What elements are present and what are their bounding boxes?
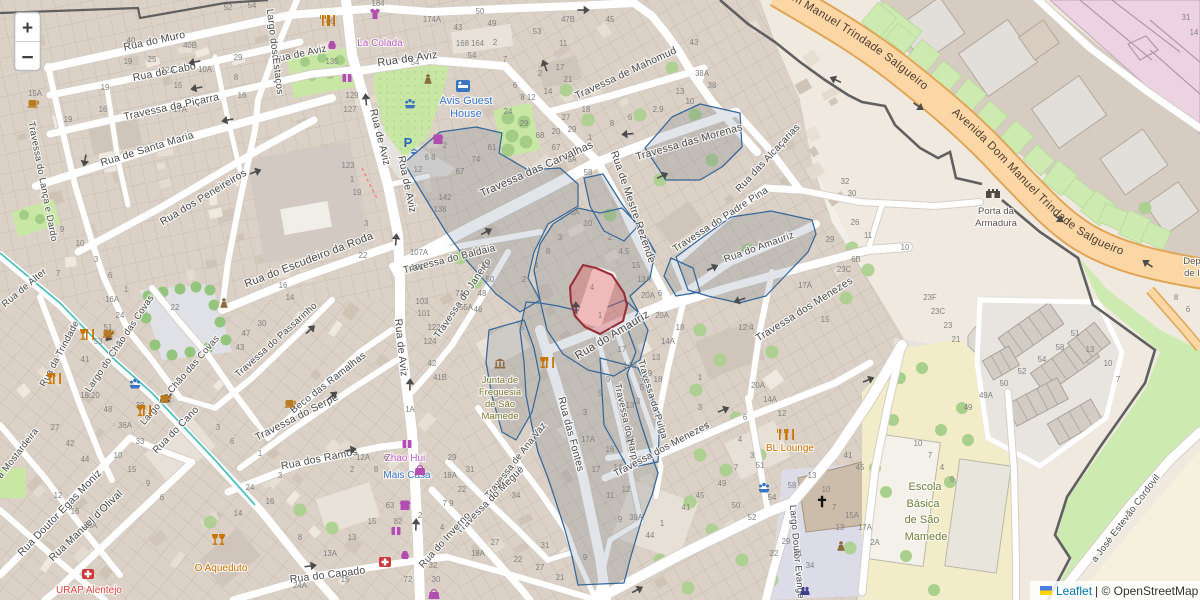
svg-text:18: 18 <box>582 105 591 114</box>
svg-text:6: 6 <box>628 113 632 122</box>
svg-text:42: 42 <box>428 359 437 368</box>
svg-text:24: 24 <box>504 107 513 116</box>
svg-text:127: 127 <box>343 105 356 114</box>
svg-text:10: 10 <box>584 219 593 228</box>
svg-text:61: 61 <box>488 143 497 152</box>
svg-text:21: 21 <box>564 75 573 84</box>
svg-text:107A: 107A <box>410 248 429 257</box>
svg-text:19: 19 <box>64 115 73 124</box>
svg-text:45: 45 <box>606 15 615 24</box>
svg-text:21: 21 <box>952 335 961 344</box>
svg-text:4: 4 <box>440 523 445 532</box>
svg-text:68: 68 <box>536 131 545 140</box>
svg-text:23C: 23C <box>931 307 946 316</box>
svg-text:Porta da: Porta da <box>978 206 1015 217</box>
svg-text:8: 8 <box>546 247 550 256</box>
svg-text:House: House <box>450 108 482 120</box>
svg-text:19: 19 <box>353 188 362 197</box>
svg-text:9: 9 <box>583 553 587 562</box>
svg-text:36A: 36A <box>83 521 98 530</box>
svg-text:17A: 17A <box>173 105 188 114</box>
svg-text:3: 3 <box>216 423 220 432</box>
svg-text:38: 38 <box>708 81 717 90</box>
svg-text:17: 17 <box>618 345 627 354</box>
svg-text:2: 2 <box>538 69 542 78</box>
svg-text:9: 9 <box>146 479 150 488</box>
svg-text:+: + <box>22 18 33 39</box>
svg-text:15A: 15A <box>28 89 43 98</box>
svg-text:27: 27 <box>491 538 500 547</box>
svg-text:7: 7 <box>503 55 507 64</box>
svg-text:58: 58 <box>584 168 593 177</box>
svg-text:Armadura: Armadura <box>975 218 1017 229</box>
svg-text:9: 9 <box>60 225 64 234</box>
svg-text:7 9: 7 9 <box>443 499 454 508</box>
svg-text:4: 4 <box>704 421 709 430</box>
svg-text:50: 50 <box>486 275 495 284</box>
svg-text:49A: 49A <box>979 391 994 400</box>
svg-text:7: 7 <box>928 451 932 460</box>
svg-text:4: 4 <box>940 463 945 472</box>
svg-text:4: 4 <box>738 435 743 444</box>
svg-text:23F: 23F <box>923 293 937 302</box>
svg-text:16: 16 <box>71 507 80 516</box>
svg-text:Avis Guest: Avis Guest <box>440 95 493 107</box>
svg-text:14A: 14A <box>661 337 676 346</box>
svg-text:10: 10 <box>114 451 123 460</box>
svg-text:17: 17 <box>556 63 565 72</box>
svg-text:53: 53 <box>533 27 542 36</box>
svg-text:8: 8 <box>298 533 302 542</box>
svg-text:22: 22 <box>514 555 523 564</box>
svg-text:51: 51 <box>756 461 765 470</box>
svg-text:48: 48 <box>104 405 113 414</box>
svg-text:54: 54 <box>411 58 420 67</box>
svg-text:18A: 18A <box>443 471 458 480</box>
svg-text:14: 14 <box>1190 28 1199 37</box>
svg-text:6: 6 <box>384 453 388 462</box>
svg-text:4: 4 <box>590 283 595 292</box>
svg-text:14: 14 <box>286 293 295 302</box>
svg-text:103: 103 <box>415 297 428 306</box>
svg-text:22: 22 <box>359 251 368 260</box>
svg-text:Freguesia: Freguesia <box>479 387 522 398</box>
svg-text:3: 3 <box>558 233 562 242</box>
svg-text:58: 58 <box>1056 343 1065 352</box>
svg-text:31: 31 <box>466 465 475 474</box>
svg-text:67: 67 <box>552 143 561 152</box>
svg-text:14: 14 <box>234 509 243 518</box>
svg-text:9: 9 <box>648 369 652 378</box>
svg-text:18A: 18A <box>471 549 486 558</box>
svg-text:3: 3 <box>636 397 640 406</box>
svg-text:P: P <box>404 135 413 150</box>
svg-text:27: 27 <box>536 563 545 572</box>
svg-text:20A: 20A <box>655 311 670 320</box>
svg-text:| © OpenStreetMap: | © OpenStreetMap <box>1095 584 1199 598</box>
svg-text:51: 51 <box>1071 329 1080 338</box>
svg-text:de I: de I <box>1184 268 1200 279</box>
svg-text:10: 10 <box>1104 359 1113 368</box>
svg-text:42: 42 <box>66 439 75 448</box>
svg-text:82: 82 <box>394 517 403 526</box>
svg-text:20A: 20A <box>641 291 656 300</box>
svg-text:16: 16 <box>266 497 275 506</box>
svg-text:13: 13 <box>808 471 817 480</box>
svg-text:1: 1 <box>660 519 664 528</box>
svg-text:29: 29 <box>234 53 243 62</box>
svg-text:13A: 13A <box>637 275 652 284</box>
svg-text:3: 3 <box>364 219 368 228</box>
svg-text:5: 5 <box>520 323 525 332</box>
svg-text:17A: 17A <box>858 523 873 532</box>
svg-text:3: 3 <box>94 255 98 264</box>
svg-text:23C: 23C <box>837 265 852 274</box>
svg-text:22: 22 <box>171 303 180 312</box>
svg-text:4,5: 4,5 <box>619 247 631 256</box>
svg-text:30: 30 <box>258 319 267 328</box>
svg-text:6: 6 <box>743 413 747 422</box>
svg-text:33: 33 <box>136 437 145 446</box>
svg-text:54: 54 <box>768 493 777 502</box>
svg-text:22: 22 <box>458 485 467 494</box>
svg-text:1: 1 <box>598 311 602 320</box>
svg-text:54: 54 <box>468 51 477 60</box>
svg-text:43: 43 <box>236 343 245 352</box>
svg-text:19: 19 <box>124 57 133 66</box>
svg-text:1A: 1A <box>405 405 415 414</box>
svg-text:12: 12 <box>414 165 423 174</box>
svg-text:29: 29 <box>782 537 791 546</box>
svg-text:44: 44 <box>81 455 90 464</box>
svg-text:URAP Alentejo: URAP Alentejo <box>56 585 122 596</box>
svg-text:12A: 12A <box>161 66 176 75</box>
svg-text:49: 49 <box>718 479 727 488</box>
svg-text:18: 18 <box>676 323 685 332</box>
svg-text:17A: 17A <box>581 435 596 444</box>
svg-text:50: 50 <box>1000 379 1009 388</box>
svg-text:30: 30 <box>848 189 857 198</box>
svg-text:10: 10 <box>76 239 85 248</box>
svg-text:50: 50 <box>476 7 485 16</box>
svg-text:53: 53 <box>94 337 103 346</box>
svg-text:31: 31 <box>541 541 550 550</box>
svg-text:14: 14 <box>614 463 623 472</box>
svg-text:67: 67 <box>456 167 465 176</box>
svg-text:43: 43 <box>690 38 699 47</box>
svg-text:4: 4 <box>534 261 539 270</box>
svg-text:31: 31 <box>794 549 803 558</box>
svg-text:41B: 41B <box>433 373 447 382</box>
svg-text:138: 138 <box>433 205 446 214</box>
svg-text:16: 16 <box>238 91 247 100</box>
svg-text:6: 6 <box>950 475 954 484</box>
svg-text:Leaflet: Leaflet <box>1056 584 1093 598</box>
svg-text:16A: 16A <box>105 295 120 304</box>
svg-text:30: 30 <box>432 575 441 584</box>
svg-text:24: 24 <box>116 311 125 320</box>
svg-text:15: 15 <box>174 81 183 90</box>
svg-text:46: 46 <box>474 305 483 314</box>
svg-text:29: 29 <box>520 119 529 128</box>
svg-text:14A: 14A <box>623 361 638 370</box>
svg-text:6 8: 6 8 <box>425 153 436 162</box>
svg-text:1: 1 <box>698 373 702 382</box>
svg-text:58: 58 <box>788 481 797 490</box>
svg-text:2: 2 <box>608 233 612 242</box>
svg-text:40: 40 <box>127 36 136 45</box>
svg-text:BL Lounge: BL Lounge <box>766 443 814 454</box>
svg-text:129: 129 <box>345 91 358 100</box>
svg-text:11: 11 <box>559 39 567 48</box>
svg-text:22: 22 <box>770 549 779 558</box>
svg-text:12: 12 <box>54 491 63 500</box>
svg-text:5A: 5A <box>570 208 580 217</box>
svg-text:2: 2 <box>522 275 526 284</box>
svg-text:13: 13 <box>348 533 357 542</box>
svg-text:16: 16 <box>606 445 615 454</box>
svg-text:39A: 39A <box>629 513 644 522</box>
svg-text:18:20: 18:20 <box>80 391 100 400</box>
svg-text:8: 8 <box>1174 293 1178 302</box>
svg-text:18: 18 <box>654 375 663 384</box>
svg-text:19: 19 <box>101 83 110 92</box>
svg-text:3: 3 <box>750 451 754 460</box>
svg-text:de São: de São <box>905 514 940 526</box>
svg-text:8: 8 <box>374 465 378 474</box>
svg-text:1: 1 <box>124 285 128 294</box>
svg-text:52: 52 <box>1018 367 1027 376</box>
svg-text:7: 7 <box>734 463 738 472</box>
svg-text:12:4: 12:4 <box>738 323 754 332</box>
svg-text:41: 41 <box>682 503 691 512</box>
svg-text:2: 2 <box>350 465 354 474</box>
svg-text:1: 1 <box>258 449 262 458</box>
svg-text:45: 45 <box>696 491 705 500</box>
svg-text:17A: 17A <box>798 281 813 290</box>
svg-text:7A: 7A <box>455 289 465 298</box>
svg-text:25: 25 <box>148 55 157 64</box>
svg-text:2,9: 2,9 <box>653 105 664 114</box>
svg-text:41: 41 <box>844 451 853 460</box>
svg-text:9: 9 <box>606 375 610 384</box>
svg-text:de São: de São <box>485 399 515 410</box>
svg-text:43: 43 <box>454 23 463 32</box>
svg-text:O Aqueduto: O Aqueduto <box>195 563 248 574</box>
svg-text:La Colada: La Colada <box>357 38 403 49</box>
svg-text:1: 1 <box>588 133 592 142</box>
svg-text:6: 6 <box>658 289 662 298</box>
svg-text:10: 10 <box>914 439 923 448</box>
svg-text:14A: 14A <box>763 395 778 404</box>
svg-text:16: 16 <box>279 281 288 290</box>
svg-text:15: 15 <box>341 575 350 584</box>
svg-text:Básica: Básica <box>906 498 940 510</box>
svg-text:7: 7 <box>832 503 836 512</box>
svg-text:8 12: 8 12 <box>520 93 535 102</box>
svg-text:24A: 24A <box>293 581 308 590</box>
svg-text:10A: 10A <box>198 65 213 74</box>
svg-text:3: 3 <box>278 471 282 480</box>
svg-text:2: 2 <box>443 141 447 150</box>
svg-text:38A: 38A <box>695 69 710 78</box>
svg-text:8: 8 <box>234 73 238 82</box>
svg-text:52: 52 <box>482 261 491 270</box>
svg-text:15: 15 <box>632 261 641 270</box>
svg-text:10: 10 <box>822 485 831 494</box>
svg-text:49: 49 <box>964 403 973 412</box>
svg-text:36A: 36A <box>118 421 133 430</box>
svg-text:63: 63 <box>386 501 395 510</box>
svg-text:2: 2 <box>418 511 422 520</box>
svg-text:174A: 174A <box>423 15 442 24</box>
svg-text:15: 15 <box>128 465 137 474</box>
svg-text:124: 124 <box>423 337 437 346</box>
svg-text:Zhao Hui: Zhao Hui <box>385 453 426 464</box>
svg-text:Junta de: Junta de <box>482 375 518 386</box>
svg-text:6: 6 <box>513 81 517 90</box>
svg-text:41: 41 <box>81 355 90 364</box>
svg-text:27: 27 <box>562 113 571 122</box>
svg-text:74: 74 <box>472 155 481 164</box>
svg-text:184: 184 <box>371 0 385 8</box>
svg-text:31: 31 <box>1182 13 1191 22</box>
svg-text:13: 13 <box>1086 345 1095 354</box>
svg-text:7: 7 <box>1116 375 1120 384</box>
svg-text:20: 20 <box>552 127 561 136</box>
svg-text:101: 101 <box>417 309 430 318</box>
svg-text:15A: 15A <box>845 511 860 520</box>
svg-text:45: 45 <box>856 463 865 472</box>
svg-text:52: 52 <box>748 513 757 522</box>
svg-text:34: 34 <box>512 491 521 500</box>
svg-text:54: 54 <box>1038 355 1047 364</box>
svg-text:6: 6 <box>160 493 164 502</box>
svg-text:−: − <box>21 46 33 69</box>
svg-text:2A: 2A <box>870 538 880 547</box>
svg-text:6B: 6B <box>851 255 861 264</box>
svg-text:15: 15 <box>368 517 377 526</box>
svg-text:54: 54 <box>248 1 257 10</box>
svg-text:12A: 12A <box>356 453 371 462</box>
svg-text:21: 21 <box>556 573 565 582</box>
svg-text:32: 32 <box>429 561 438 570</box>
svg-text:122: 122 <box>427 323 440 332</box>
svg-text:23: 23 <box>944 321 953 330</box>
svg-text:16: 16 <box>99 105 108 114</box>
svg-text:5: 5 <box>598 389 603 398</box>
svg-text:Escola: Escola <box>908 481 942 493</box>
svg-text:13: 13 <box>626 401 635 410</box>
svg-text:13: 13 <box>836 523 845 532</box>
svg-text:34: 34 <box>806 561 815 570</box>
svg-text:15: 15 <box>821 315 830 324</box>
svg-text:49: 49 <box>488 19 497 28</box>
svg-text:11: 11 <box>606 491 614 500</box>
svg-text:40B: 40B <box>183 41 197 50</box>
svg-text:7: 7 <box>56 269 60 278</box>
svg-text:72: 72 <box>404 575 413 584</box>
svg-text:24: 24 <box>246 483 255 492</box>
svg-text:Mamede: Mamede <box>482 411 519 422</box>
svg-text:3: 3 <box>698 403 702 412</box>
svg-text:47B: 47B <box>561 15 575 24</box>
svg-text:9: 9 <box>618 515 622 524</box>
svg-text:5A: 5A <box>567 155 577 164</box>
svg-text:142: 142 <box>438 193 451 202</box>
svg-text:8: 8 <box>610 119 614 128</box>
svg-text:21: 21 <box>626 435 635 444</box>
svg-text:29: 29 <box>568 125 577 134</box>
svg-text:55A: 55A <box>459 303 474 312</box>
svg-text:Mamede: Mamede <box>905 531 948 543</box>
svg-text:✝: ✝ <box>816 494 829 511</box>
svg-text:168 164: 168 164 <box>456 39 485 48</box>
svg-text:32: 32 <box>841 177 850 186</box>
svg-text:47: 47 <box>242 329 251 338</box>
svg-text:Dep: Dep <box>1183 256 1200 267</box>
svg-text:3: 3 <box>583 408 587 417</box>
svg-text:10: 10 <box>901 243 910 252</box>
svg-text:14: 14 <box>544 87 553 96</box>
svg-text:1: 1 <box>498 479 502 488</box>
svg-text:135: 135 <box>325 57 339 66</box>
svg-text:1: 1 <box>350 175 354 184</box>
svg-text:44: 44 <box>646 531 655 540</box>
svg-text:20A: 20A <box>751 381 766 390</box>
svg-text:123: 123 <box>341 161 354 170</box>
svg-text:13: 13 <box>676 87 685 96</box>
svg-text:48: 48 <box>478 289 487 298</box>
svg-text:12: 12 <box>622 485 631 494</box>
svg-text:6: 6 <box>1186 305 1190 314</box>
svg-text:12: 12 <box>778 409 787 418</box>
svg-text:26: 26 <box>851 218 860 227</box>
svg-text:27: 27 <box>51 423 60 432</box>
svg-text:10: 10 <box>686 97 695 106</box>
svg-text:5: 5 <box>640 383 645 392</box>
svg-text:29: 29 <box>448 453 457 462</box>
svg-text:13: 13 <box>652 353 661 362</box>
svg-text:105: 105 <box>410 263 424 272</box>
svg-text:11: 11 <box>864 231 872 240</box>
svg-text:50: 50 <box>732 501 741 510</box>
svg-text:52: 52 <box>224 3 233 12</box>
svg-text:6: 6 <box>108 271 112 280</box>
svg-text:29: 29 <box>826 235 835 244</box>
svg-text:17: 17 <box>592 465 601 474</box>
svg-text:6: 6 <box>230 437 234 446</box>
svg-text:2: 2 <box>493 38 497 47</box>
svg-text:13A: 13A <box>323 549 338 558</box>
